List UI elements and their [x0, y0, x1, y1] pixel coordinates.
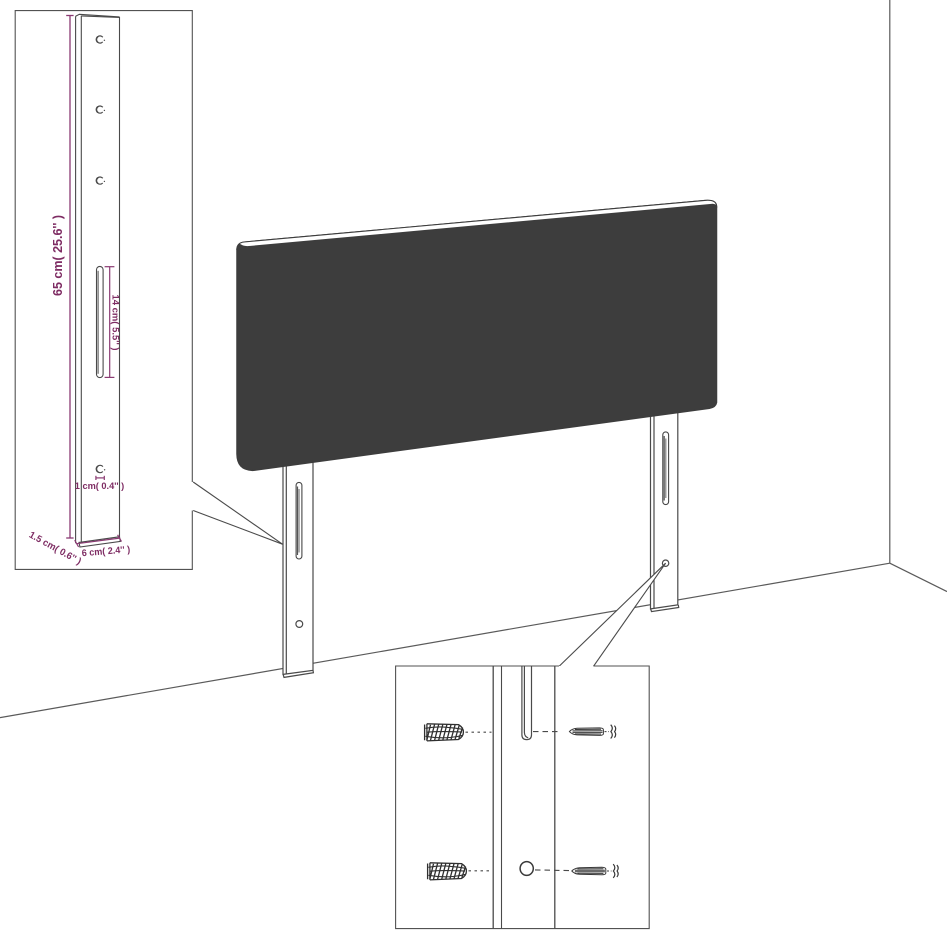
svg-text:14 cm( 5.5'' ): 14 cm( 5.5'' ) [109, 295, 120, 351]
svg-text:1 cm( 0.4'' ): 1 cm( 0.4'' ) [75, 481, 125, 492]
svg-text:65 cm( 25.6'' ): 65 cm( 25.6'' ) [51, 215, 65, 296]
